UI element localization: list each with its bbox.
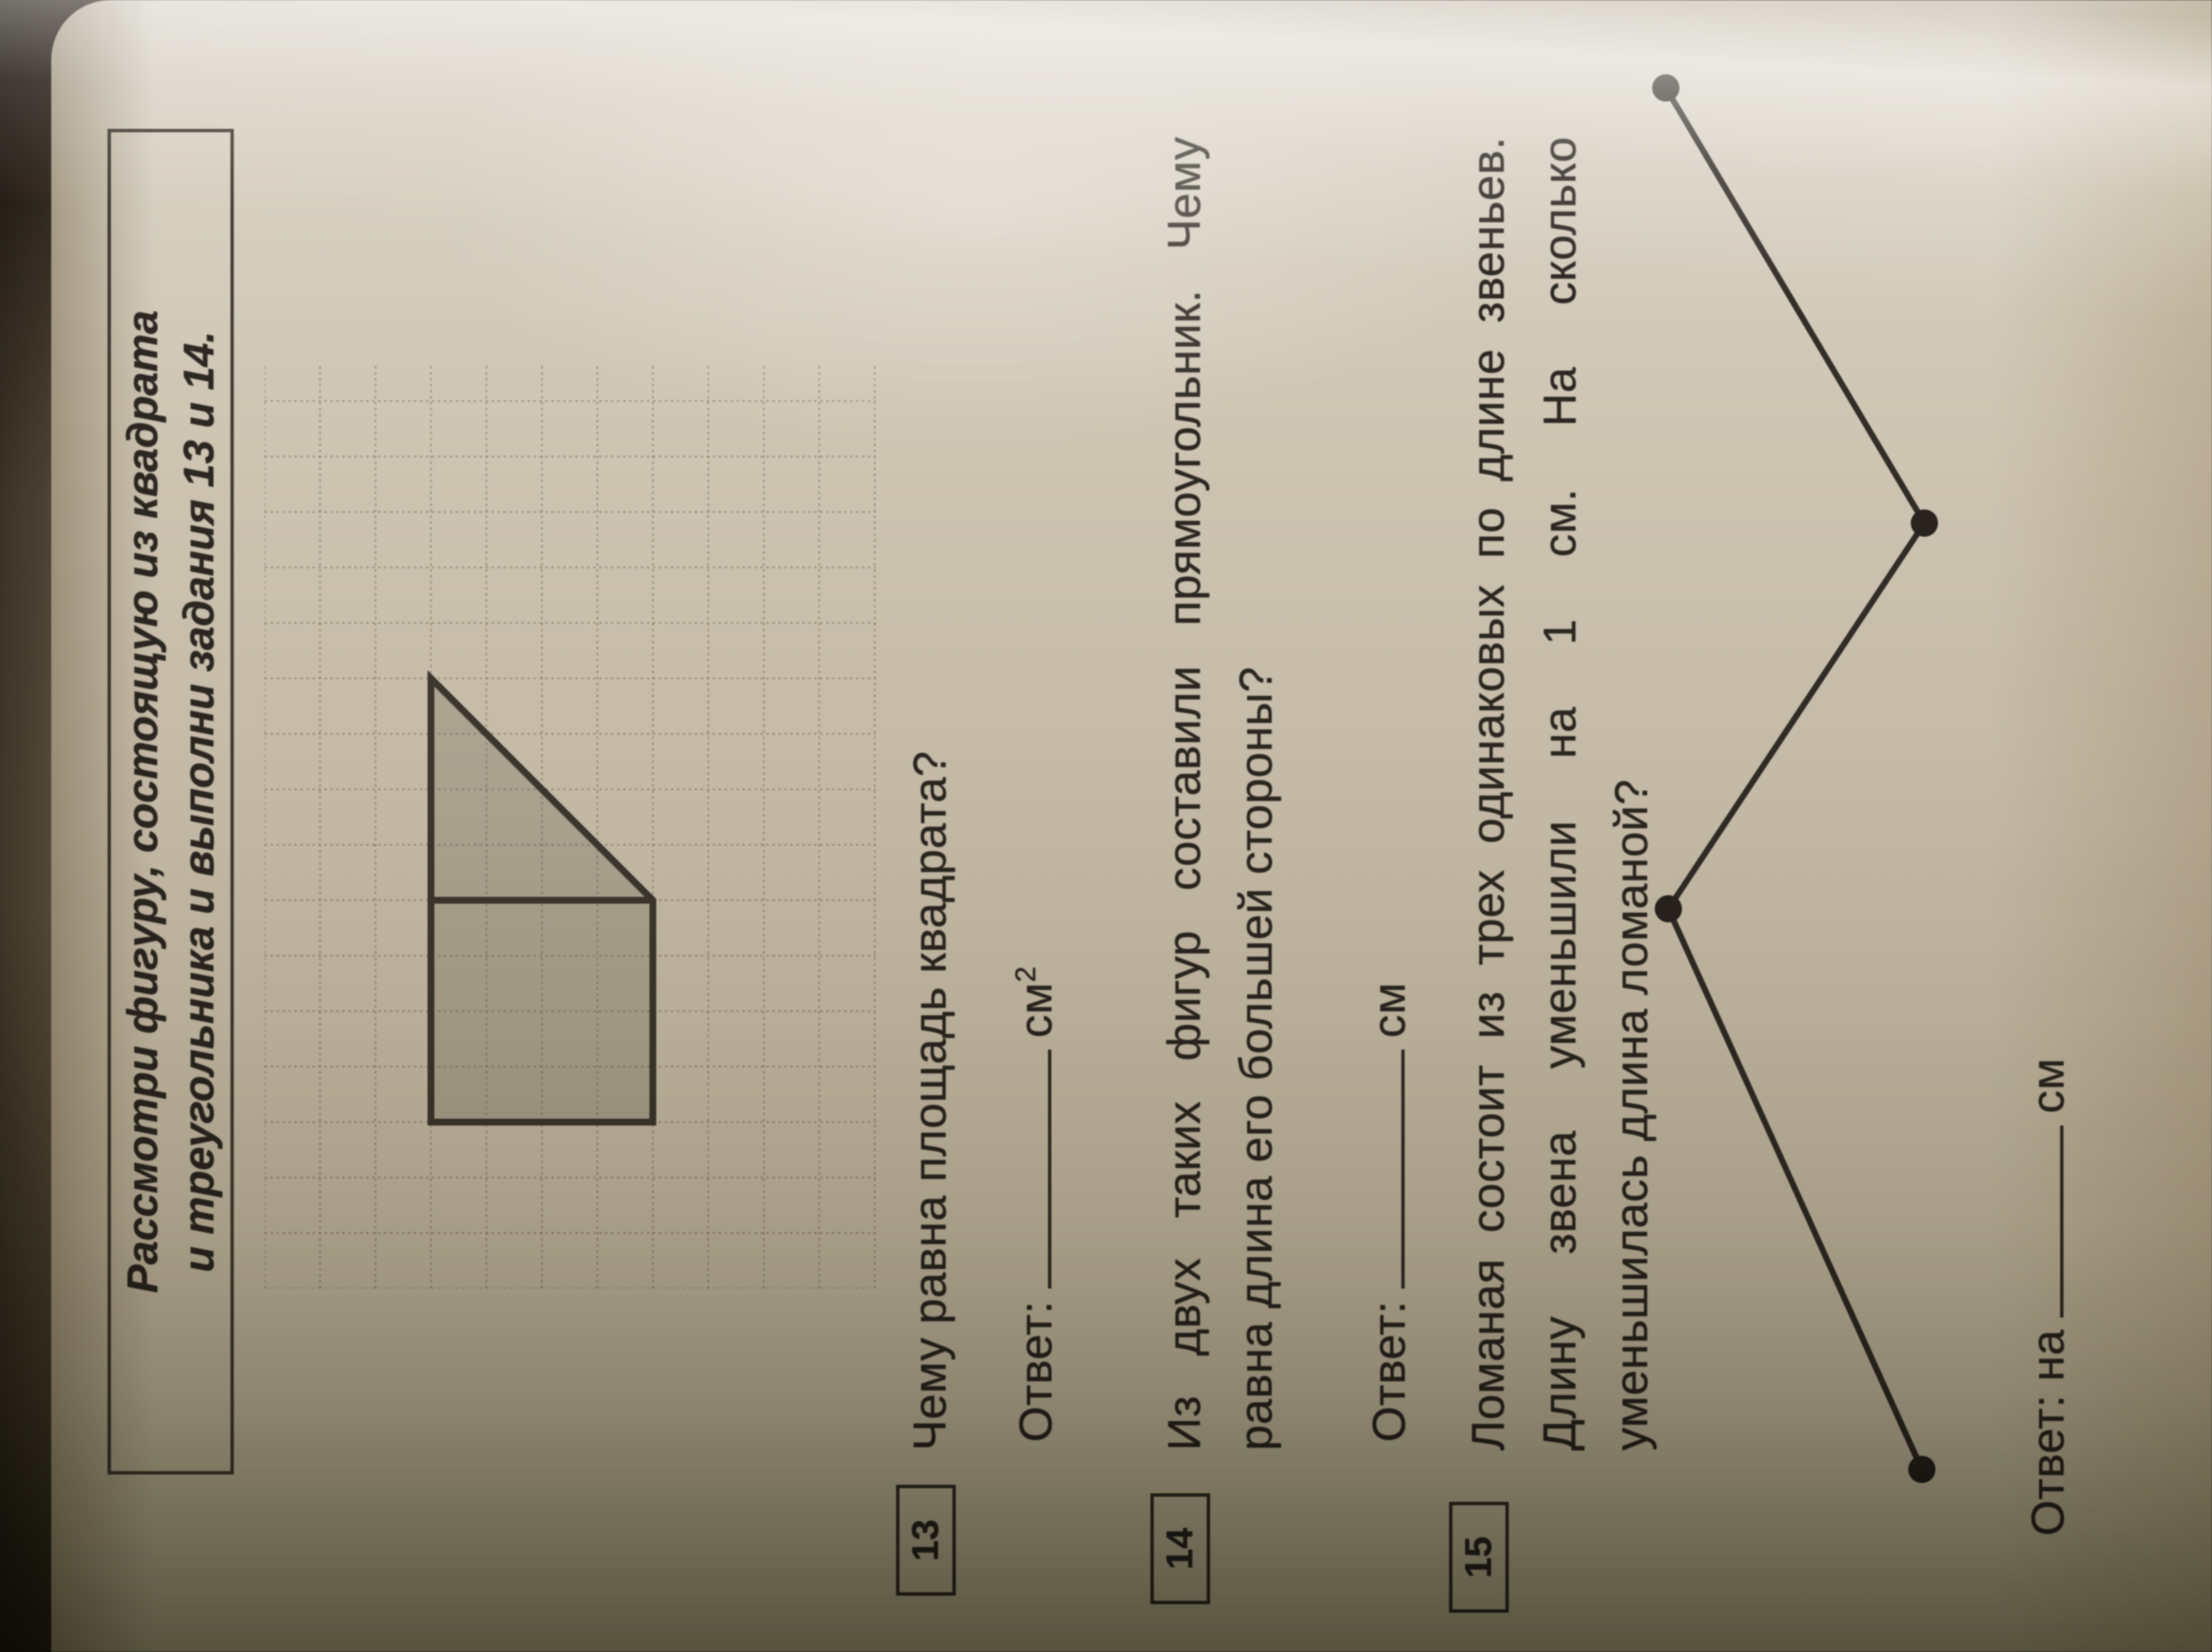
- grid-figure-svg: [265, 365, 876, 1288]
- broken-line-figure-svg: [1639, 31, 1980, 1524]
- poly-seg: [1668, 909, 1922, 1469]
- task-13-answer-unit-sup: 2: [1010, 966, 1042, 982]
- polyline-vertex-dot: [1908, 1456, 1935, 1483]
- task-13-answer-line: Ответ:см2: [997, 966, 1066, 1442]
- task-13-answer-blank: [1002, 1050, 1051, 1288]
- worksheet-photo: Рассмотри фигуру, состоящую из квадрата …: [0, 0, 2212, 1652]
- task-13-answer-unit: см: [1010, 982, 1062, 1038]
- polyline-vertex-dot: [1911, 509, 1938, 537]
- task-13-number-box: 13: [896, 1485, 956, 1596]
- task-14-line-2: равна длина его большей стороны?: [1220, 137, 1292, 1451]
- poly-seg: [1666, 88, 1924, 523]
- task-14-number: 14: [1159, 1528, 1202, 1570]
- task-13-text: Чему равна площадь квадрата?: [894, 137, 966, 1451]
- task-15-answer-unit: см: [2023, 1058, 2074, 1114]
- task-14-text: Из двух таких фигур составили прямоуголь…: [1149, 137, 1292, 1451]
- task-14-number-box: 14: [1150, 1493, 1210, 1604]
- task-15-text: Ломаная состоит из трех одинаковых по дл…: [1452, 137, 1668, 1451]
- task-14-answer-unit: см: [1364, 982, 1415, 1038]
- task-13-line-1: Чему равна площадь квадрата?: [894, 137, 966, 1451]
- polyline-vertex-dot: [1655, 895, 1682, 922]
- task-15-answer-prefix: Ответ: на: [2023, 1329, 2074, 1536]
- task-14-line-1: Из двух таких фигур составили прямоуголь…: [1149, 137, 1220, 1451]
- task-15-line-1: Ломаная состоит из трех одинаковых по дл…: [1452, 137, 1524, 1451]
- instruction-box: Рассмотри фигуру, состоящую из квадрата …: [108, 129, 234, 1475]
- polyline-vertex-dot: [1652, 74, 1679, 102]
- instruction-line-1: Рассмотри фигуру, состоящую из квадрата: [114, 311, 171, 1294]
- task-13-answer-prefix: Ответ:: [1010, 1300, 1062, 1442]
- instruction-line-2: и треугольника и выполни задания 13 и 14…: [171, 331, 227, 1272]
- task-14-answer-prefix: Ответ:: [1364, 1300, 1415, 1442]
- poly-seg: [1668, 523, 1924, 909]
- worksheet-page: Рассмотри фигуру, состоящую из квадрата …: [51, 0, 2212, 1652]
- task-15-number-box: 15: [1449, 1502, 1509, 1613]
- task-15-answer-blank: [2014, 1126, 2064, 1318]
- task-15-number: 15: [1458, 1537, 1500, 1579]
- task-14-answer-blank: [1355, 1050, 1405, 1288]
- task-13-number: 13: [905, 1520, 947, 1562]
- task-14-answer-line: Ответ:см: [1355, 982, 1419, 1442]
- task-15-line-2: Длину звена уменьшили на 1 см. На скольк…: [1524, 137, 1596, 1451]
- task-15-answer-line: Ответ: насм: [2014, 1058, 2078, 1536]
